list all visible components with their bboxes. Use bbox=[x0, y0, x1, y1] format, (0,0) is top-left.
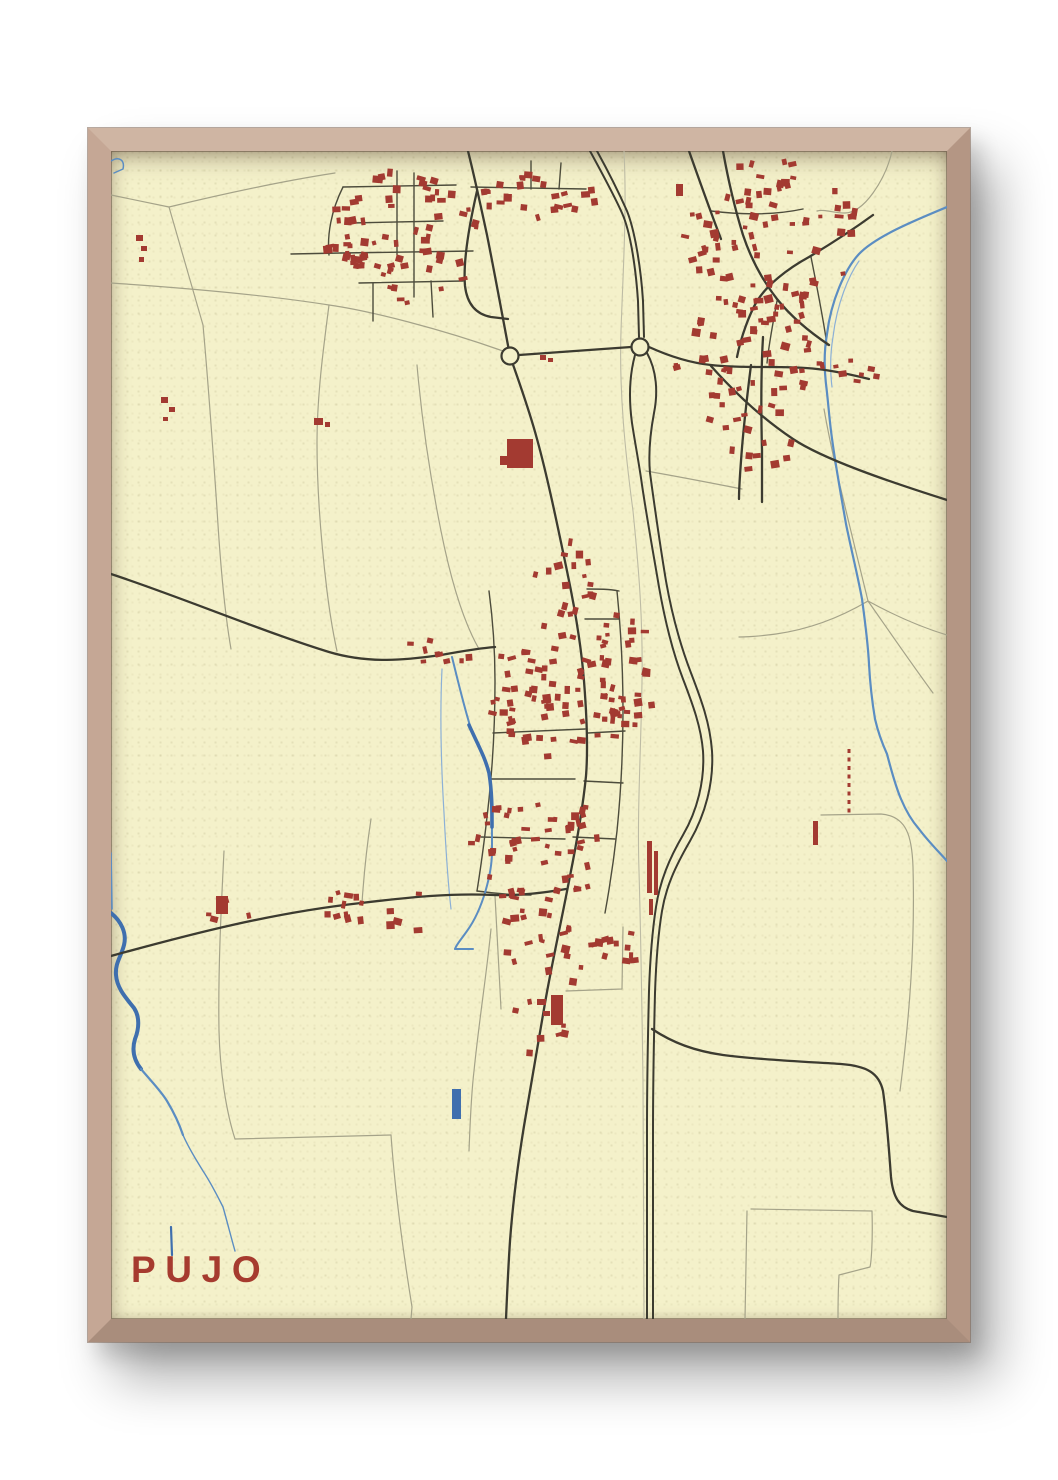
poster-frame: PUJO bbox=[88, 128, 970, 1342]
wall: PUJO bbox=[0, 0, 1058, 1480]
poster-title: PUJO bbox=[131, 1249, 270, 1291]
city-map-graphic bbox=[111, 151, 947, 1319]
map-poster-paper: PUJO bbox=[111, 151, 947, 1319]
